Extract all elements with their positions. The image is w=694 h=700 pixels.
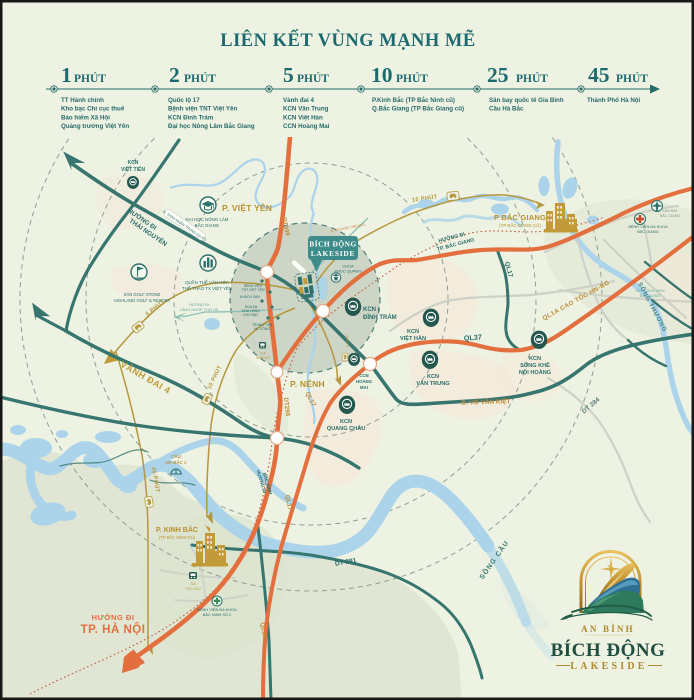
svg-text:ĐẠI HỌC NÔNG LÂM: ĐẠI HỌC NÔNG LÂM <box>186 217 229 222</box>
svg-text:(TP BẮC GIANG CŨ): (TP BẮC GIANG CŨ) <box>499 223 541 228</box>
svg-text:Bảo hiểm Xã Hội: Bảo hiểm Xã Hội <box>61 114 110 121</box>
svg-text:KCN: KCN <box>427 374 439 380</box>
svg-text:P. VIỆT YÊN: P. VIỆT YÊN <box>222 202 272 213</box>
svg-text:BẮC GIANG: BẮC GIANG <box>660 213 681 218</box>
svg-text:THỂ THAO TX VIỆT YÊN: THỂ THAO TX VIỆT YÊN <box>182 286 232 291</box>
svg-text:SÂN BAY: SÂN BAY <box>662 208 678 213</box>
svg-text:Kho bạc Chi cục thuế: Kho bạc Chi cục thuế <box>61 106 125 113</box>
svg-text:THỊ CẦU: THỊ CẦU <box>185 587 200 591</box>
svg-text:KCN Việt Hàn: KCN Việt Hàn <box>283 114 323 121</box>
svg-text:VIỆT HÀN: VIỆT HÀN <box>400 334 426 342</box>
svg-text:PHÚT: PHÚT <box>616 71 648 85</box>
svg-text:AN BÌNH: AN BÌNH <box>581 624 635 634</box>
svg-text:KCN: KCN <box>340 419 352 425</box>
svg-text:QUẦN THỂ VĂN HÓA: QUẦN THỂ VĂN HÓA <box>185 280 229 285</box>
svg-text:MAI: MAI <box>360 385 368 390</box>
svg-text:KHO BẠC: KHO BẠC <box>243 313 259 317</box>
svg-text:GA: GA <box>260 352 266 356</box>
svg-text:BẮC NINH SỐ 2: BẮC NINH SỐ 2 <box>203 612 232 617</box>
svg-text:KCN Vân Trung: KCN Vân Trung <box>283 106 329 113</box>
svg-text:KHÁCH SẠN: KHÁCH SẠN <box>240 295 260 299</box>
svg-text:PHÚT: PHÚT <box>297 71 329 85</box>
svg-text:HÀ BẮC 1: HÀ BẮC 1 <box>166 460 187 465</box>
svg-text:P BẮC GIANG: P BẮC GIANG <box>494 213 546 222</box>
svg-text:1: 1 <box>61 63 72 87</box>
svg-text:KCN /: KCN / <box>363 307 380 313</box>
svg-text:KCN: KCN <box>529 356 541 362</box>
svg-text:KCN: KCN <box>128 160 139 166</box>
svg-text:LAKESIDE: LAKESIDE <box>570 661 647 672</box>
svg-text:P. KINH BẮC: P. KINH BẮC <box>156 525 198 534</box>
svg-text:CCN Hoàng Mai: CCN Hoàng Mai <box>283 123 330 130</box>
svg-text:LIÊN KẾT VÙNG MẠNH MẼ: LIÊN KẾT VÙNG MẠNH MẼ <box>220 29 475 51</box>
svg-text:ĐÌNH TRÁM: ĐÌNH TRÁM <box>363 313 397 321</box>
svg-text:45: 45 <box>588 63 610 87</box>
svg-text:LÀNG NGHỀ THỔ HÀ: LÀNG NGHỀ THỔ HÀ <box>180 307 219 312</box>
svg-text:Quảng trường Việt Yên: Quảng trường Việt Yên <box>61 123 129 130</box>
svg-text:PHÚT: PHÚT <box>74 71 106 85</box>
svg-text:Vành đai 4: Vành đai 4 <box>283 97 315 104</box>
svg-text:BẮC GIANG: BẮC GIANG <box>640 293 661 298</box>
svg-text:25: 25 <box>487 63 509 87</box>
svg-text:KCN: KCN <box>407 329 419 335</box>
svg-text:2: 2 <box>169 63 180 87</box>
svg-text:CẦU: CẦU <box>171 454 181 459</box>
svg-text:NỘI HOÀNG: NỘI HOÀNG <box>519 368 551 376</box>
svg-text:Bệnh viện TNT Việt Yên: Bệnh viện TNT Việt Yên <box>168 106 237 113</box>
svg-text:KCN Đình Trám: KCN Đình Trám <box>168 114 214 121</box>
svg-text:BẮC GIANG: BẮC GIANG <box>637 229 659 234</box>
svg-text:HOÀNG: HOÀNG <box>356 379 373 384</box>
svg-text:Cầu Hà Bắc: Cầu Hà Bắc <box>489 106 524 113</box>
svg-text:VIỆT TIẾN: VIỆT TIẾN <box>121 165 145 173</box>
svg-text:HC CÔNG: HC CÔNG <box>254 326 270 331</box>
svg-text:(TP BẮC NINH CŨ): (TP BẮC NINH CŨ) <box>159 535 196 540</box>
svg-text:Sân bay quốc tế Gia Bình: Sân bay quốc tế Gia Bình <box>489 97 564 104</box>
svg-text:PHÚT: PHÚT <box>516 71 548 85</box>
svg-text:CCN: CCN <box>359 373 368 378</box>
svg-text:SÔNG KHÊ: SÔNG KHÊ <box>520 361 550 369</box>
svg-text:P.Kinh Bắc (TP Bắc Ninh cũ): P.Kinh Bắc (TP Bắc Ninh cũ) <box>372 97 455 104</box>
svg-text:10: 10 <box>371 63 393 87</box>
svg-text:PHÚT: PHÚT <box>396 71 428 85</box>
svg-text:HƯỚNG ĐI: HƯỚNG ĐI <box>92 613 135 622</box>
svg-text:SÂN GOLF STONE: SÂN GOLF STONE <box>124 292 161 297</box>
svg-text:PHÚC QUANG: PHÚC QUANG <box>334 269 361 274</box>
svg-text:QL37: QL37 <box>464 332 483 342</box>
svg-text:BÍCH ĐỘNG: BÍCH ĐỘNG <box>309 239 356 249</box>
svg-text:TP. HÀ NỘI: TP. HÀ NỘI <box>81 623 146 636</box>
svg-text:LAKESIDE: LAKESIDE <box>311 249 356 258</box>
svg-text:KĐT CÔNG VIÊN: KĐT CÔNG VIÊN <box>635 288 664 293</box>
svg-text:BÍCH ĐỘNG: BÍCH ĐỘNG <box>551 639 666 661</box>
svg-text:SEN HỒ: SEN HỒ <box>256 355 271 360</box>
svg-text:Q.Bắc Giang (TP Bắc Giang cũ): Q.Bắc Giang (TP Bắc Giang cũ) <box>372 106 464 113</box>
svg-text:Quốc lộ 17: Quốc lộ 17 <box>168 97 200 104</box>
svg-text:TT Hành chính: TT Hành chính <box>61 97 104 104</box>
svg-text:PHÚT: PHÚT <box>184 71 216 85</box>
svg-text:QUANG CHÂU: QUANG CHÂU <box>327 425 366 432</box>
svg-text:HIGHLAND GOLF & RESORT: HIGHLAND GOLF & RESORT <box>114 298 171 303</box>
svg-text:5: 5 <box>283 63 294 87</box>
svg-text:GA: GA <box>190 582 196 586</box>
svg-text:VÂN TRUNG: VÂN TRUNG <box>416 380 449 387</box>
svg-text:P. NẾNH: P. NẾNH <box>290 379 325 389</box>
svg-text:TNT VIỆT YÊN: TNT VIỆT YÊN <box>242 287 265 292</box>
svg-text:Thành Phố Hà Nội: Thành Phố Hà Nội <box>587 97 641 104</box>
svg-text:Đại học Nông Lâm Bắc Giang: Đại học Nông Lâm Bắc Giang <box>168 123 255 130</box>
svg-text:BẮC GIANG: BẮC GIANG <box>195 223 220 228</box>
